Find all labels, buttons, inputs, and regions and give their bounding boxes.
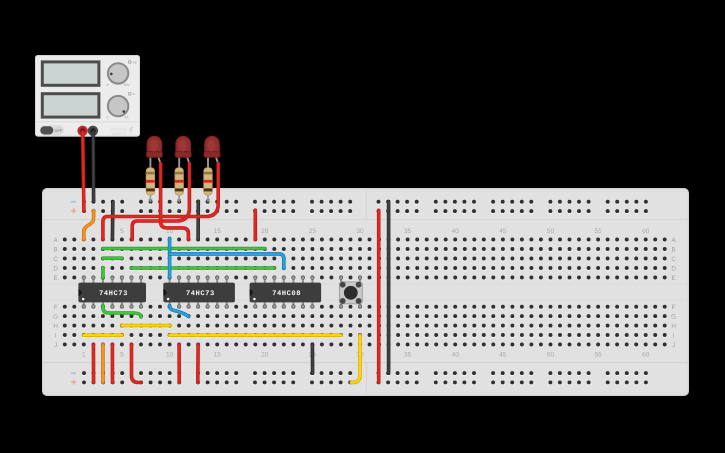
svg-text:H: H xyxy=(671,323,676,330)
svg-text:25: 25 xyxy=(309,228,317,235)
svg-text:0: 0 xyxy=(107,115,109,119)
svg-text:H: H xyxy=(53,323,58,330)
svg-text:1A: 1A xyxy=(124,115,129,119)
svg-text:15: 15 xyxy=(214,351,222,358)
svg-text:B: B xyxy=(53,246,57,253)
svg-text:SUPPLY: SUPPLY xyxy=(112,132,127,136)
svg-text:J: J xyxy=(672,342,675,349)
svg-text:55: 55 xyxy=(594,228,602,235)
svg-text:5: 5 xyxy=(120,228,124,235)
svg-text:E: E xyxy=(671,275,675,282)
svg-text:60: 60 xyxy=(642,351,650,358)
svg-text:35: 35 xyxy=(404,351,412,358)
svg-text:B: B xyxy=(671,246,675,253)
svg-text:20: 20 xyxy=(261,351,269,358)
svg-text:HC: HC xyxy=(133,60,138,64)
svg-text:5: 5 xyxy=(120,351,124,358)
svg-text:I: I xyxy=(673,332,675,339)
svg-text:G: G xyxy=(53,314,58,321)
svg-text:I: I xyxy=(55,332,57,339)
svg-text:35: 35 xyxy=(404,228,412,235)
svg-text:0: 0 xyxy=(107,83,109,87)
svg-text:1: 1 xyxy=(82,351,86,358)
svg-text:40: 40 xyxy=(452,228,460,235)
svg-text:60: 60 xyxy=(642,228,650,235)
svg-text:20: 20 xyxy=(261,228,269,235)
svg-text:45: 45 xyxy=(499,351,507,358)
svg-text:50: 50 xyxy=(547,228,555,235)
svg-text:10: 10 xyxy=(166,351,174,358)
svg-text:J: J xyxy=(54,342,57,349)
svg-text:E: E xyxy=(53,275,57,282)
svg-text:G: G xyxy=(671,314,676,321)
svg-text:D: D xyxy=(53,265,58,272)
svg-text:D: D xyxy=(671,265,676,272)
svg-text:15: 15 xyxy=(214,228,222,235)
svg-text:60V: 60V xyxy=(124,83,131,87)
svg-text:F: F xyxy=(54,304,58,311)
svg-text:F: F xyxy=(672,304,676,311)
svg-text:C: C xyxy=(53,256,58,263)
svg-text:50: 50 xyxy=(547,351,555,358)
svg-text:40: 40 xyxy=(452,351,460,358)
svg-text:45: 45 xyxy=(499,228,507,235)
svg-text:C: C xyxy=(671,256,676,263)
svg-text:30: 30 xyxy=(356,228,364,235)
svg-text:OFF: OFF xyxy=(55,129,63,133)
svg-text:55: 55 xyxy=(594,351,602,358)
